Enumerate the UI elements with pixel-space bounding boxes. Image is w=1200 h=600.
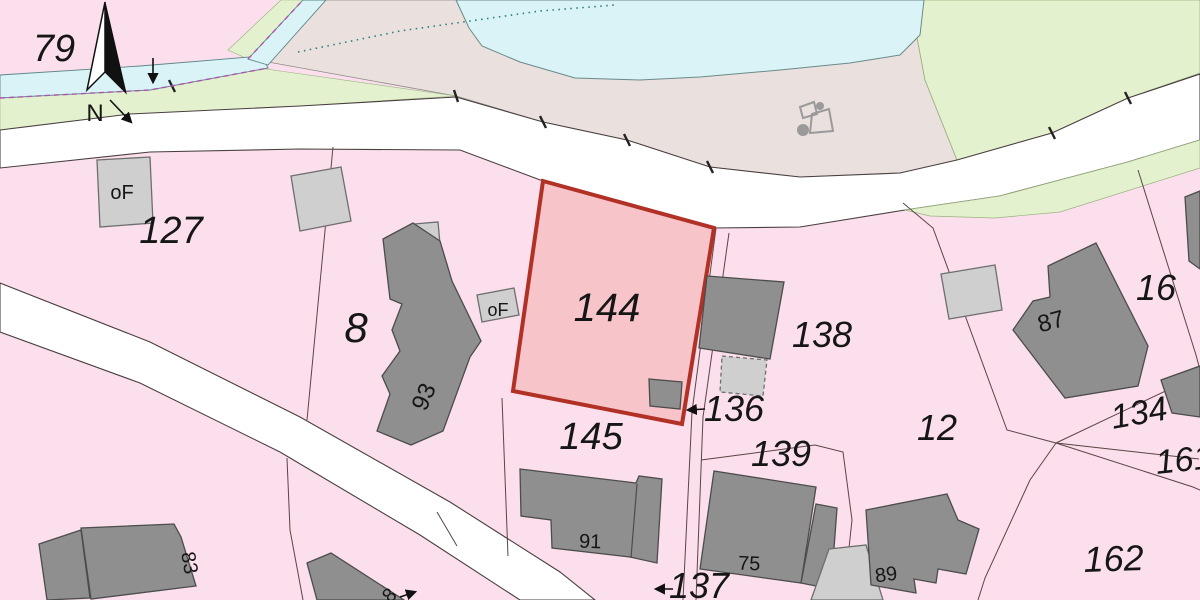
parcel-label-145: 145 — [559, 416, 623, 458]
parcel-label-139: 139 — [751, 433, 811, 474]
parcel-label-138: 138 — [792, 314, 852, 355]
house-138 — [699, 276, 784, 359]
house-of-127-number: oF — [110, 182, 133, 204]
map-viewport[interactable]: oF93oF8791758983879127814414513613813913… — [0, 0, 1200, 600]
symbol-dot-large — [797, 124, 809, 136]
house-89-number: 89 — [874, 563, 899, 588]
parcel-label-162: 162 — [1083, 537, 1144, 580]
house-75-number: 75 — [738, 553, 761, 576]
parcel-label-161: 161 — [1154, 438, 1200, 482]
house-127-b — [291, 167, 351, 231]
parcel-label-8: 8 — [344, 304, 368, 351]
parcel-label-79: 79 — [33, 28, 75, 70]
parcel-label-137: 137 — [669, 565, 731, 600]
house-83-number: 83 — [176, 550, 202, 576]
parcel-label-144: 144 — [574, 286, 641, 330]
arrow-parcel-136 — [688, 409, 705, 410]
house-91-number: 91 — [579, 531, 602, 554]
parcel-label-12: 12 — [917, 407, 957, 448]
north-arrow-letter: N — [86, 100, 103, 127]
shed-144 — [649, 379, 682, 409]
house-of-144-number: oF — [487, 300, 508, 320]
parcel-label-16: 16 — [1136, 267, 1177, 308]
map-canvas[interactable]: oF93oF8791758983879127814414513613813913… — [0, 0, 1200, 600]
parcel-label-136: 136 — [704, 388, 765, 429]
parcel-label-127: 127 — [139, 210, 204, 252]
house-16-small — [941, 265, 1002, 319]
symbol-dot-small — [816, 102, 824, 110]
